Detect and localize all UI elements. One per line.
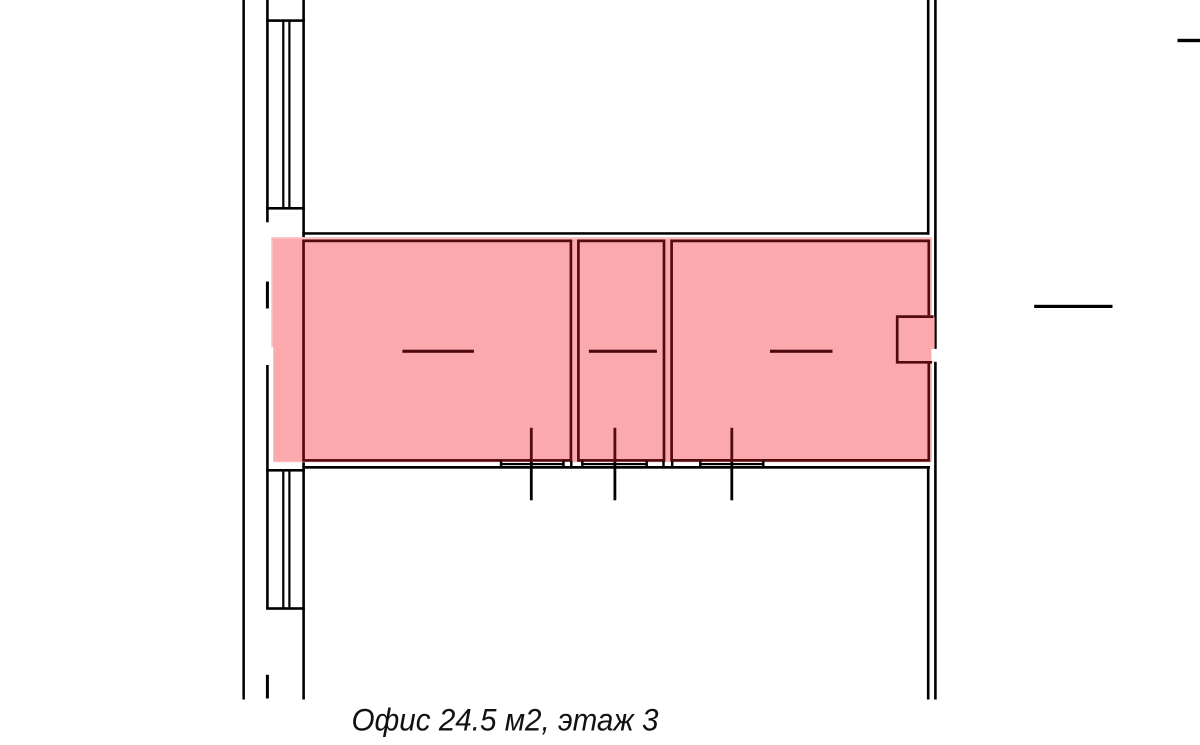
svg-text:Офис 24.5 м2, этаж 3: Офис 24.5 м2, этаж 3 xyxy=(352,701,659,737)
